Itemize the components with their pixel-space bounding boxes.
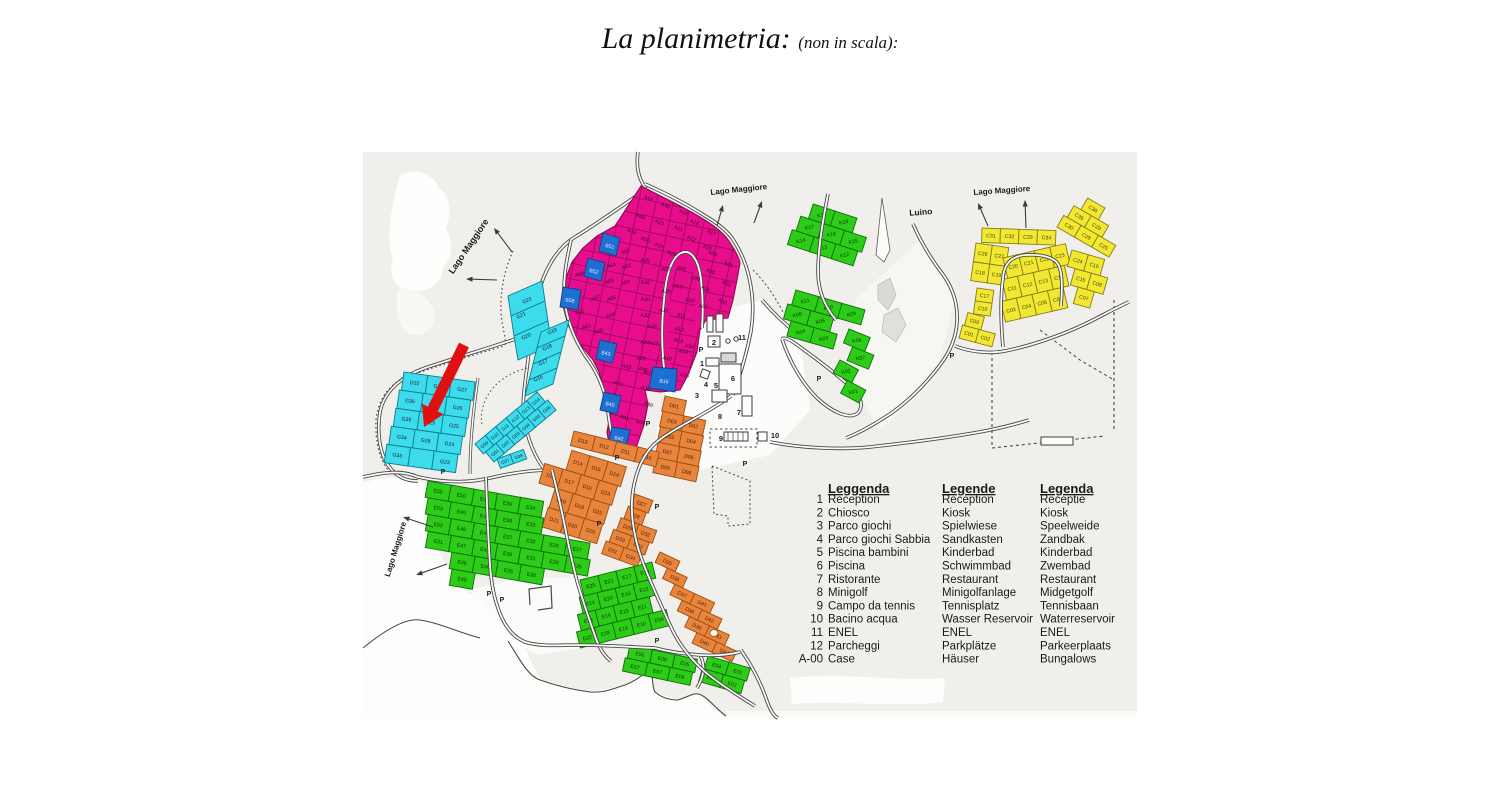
svg-text:Zwembad: Zwembad bbox=[1040, 561, 1091, 573]
svg-text:Kiosk: Kiosk bbox=[1040, 507, 1068, 519]
svg-text:4: 4 bbox=[817, 534, 824, 546]
svg-text:9: 9 bbox=[817, 600, 823, 612]
svg-text:Minigolf: Minigolf bbox=[828, 587, 868, 599]
svg-text:Piscina: Piscina bbox=[828, 561, 866, 573]
svg-text:P: P bbox=[950, 353, 955, 360]
svg-text:Parcheggi: Parcheggi bbox=[828, 640, 880, 652]
svg-text:Waterreservoir: Waterreservoir bbox=[1040, 614, 1115, 626]
svg-text:Bungalows: Bungalows bbox=[1040, 654, 1097, 666]
svg-text:Kinderbad: Kinderbad bbox=[1040, 547, 1092, 559]
svg-text:Restaurant: Restaurant bbox=[942, 574, 999, 586]
svg-text:2: 2 bbox=[712, 338, 716, 347]
svg-text:7: 7 bbox=[737, 408, 741, 417]
svg-text:P: P bbox=[500, 597, 505, 604]
svg-text:P: P bbox=[615, 455, 620, 462]
svg-text:3: 3 bbox=[695, 391, 699, 400]
svg-text:Midgetgolf: Midgetgolf bbox=[1040, 587, 1094, 599]
svg-text:Ristorante: Ristorante bbox=[828, 574, 880, 586]
svg-text:Kiosk: Kiosk bbox=[942, 507, 970, 519]
svg-text:P: P bbox=[655, 638, 660, 645]
svg-text:Receptie: Receptie bbox=[1040, 494, 1085, 506]
svg-text:Bacino acqua: Bacino acqua bbox=[828, 614, 898, 626]
svg-text:Sandkasten: Sandkasten bbox=[942, 534, 1003, 546]
svg-text:P: P bbox=[597, 521, 602, 528]
svg-text:10: 10 bbox=[810, 614, 823, 626]
svg-text:5: 5 bbox=[714, 381, 718, 390]
svg-text:10: 10 bbox=[771, 431, 779, 440]
svg-text:A28: A28 bbox=[649, 341, 659, 348]
svg-text:Minigolfanlage: Minigolfanlage bbox=[942, 587, 1016, 599]
svg-text:A33: A33 bbox=[647, 324, 657, 331]
svg-text:P: P bbox=[817, 376, 822, 383]
svg-text:P: P bbox=[646, 421, 651, 428]
svg-text:Reception: Reception bbox=[942, 494, 994, 506]
svg-text:Campo da tennis: Campo da tennis bbox=[828, 600, 915, 612]
svg-text:K06: K06 bbox=[852, 338, 862, 345]
svg-text:3: 3 bbox=[817, 521, 823, 533]
svg-text:7: 7 bbox=[817, 574, 823, 586]
svg-text:11: 11 bbox=[738, 333, 746, 342]
svg-text:A27: A27 bbox=[661, 267, 671, 274]
svg-text:Parco giochi Sabbia: Parco giochi Sabbia bbox=[828, 534, 931, 546]
svg-text:Zandbak: Zandbak bbox=[1040, 534, 1085, 546]
svg-text:A26: A26 bbox=[636, 356, 646, 363]
svg-text:2: 2 bbox=[817, 507, 823, 519]
svg-text:A31: A31 bbox=[659, 308, 669, 315]
svg-text:P: P bbox=[441, 469, 446, 476]
svg-text:A-00: A-00 bbox=[799, 654, 823, 666]
svg-text:A30: A30 bbox=[640, 297, 650, 304]
svg-text:Parkeerplaats: Parkeerplaats bbox=[1040, 640, 1111, 652]
svg-text:ENEL: ENEL bbox=[942, 627, 973, 639]
svg-text:ENEL: ENEL bbox=[828, 627, 859, 639]
svg-text:C34: C34 bbox=[1042, 235, 1052, 241]
svg-text:Reception: Reception bbox=[828, 494, 880, 506]
svg-text:K07: K07 bbox=[856, 355, 866, 362]
svg-text:Parco giochi: Parco giochi bbox=[828, 521, 891, 533]
svg-text:Case: Case bbox=[828, 654, 855, 666]
svg-text:Piscina bambini: Piscina bambini bbox=[828, 547, 909, 559]
svg-text:B16: B16 bbox=[659, 379, 669, 386]
svg-text:Tennisbaan: Tennisbaan bbox=[1040, 600, 1099, 612]
svg-text:Parkplätze: Parkplätze bbox=[942, 640, 996, 652]
svg-text:8: 8 bbox=[817, 587, 823, 599]
svg-text:A36: A36 bbox=[640, 280, 650, 287]
svg-text:5: 5 bbox=[817, 547, 823, 559]
svg-text:12: 12 bbox=[810, 640, 823, 652]
svg-text:9: 9 bbox=[719, 434, 723, 443]
svg-text:C31: C31 bbox=[986, 233, 996, 239]
svg-text:Speelweide: Speelweide bbox=[1040, 521, 1099, 533]
svg-text:1: 1 bbox=[817, 494, 823, 506]
svg-text:Tennisplatz: Tennisplatz bbox=[942, 600, 1000, 612]
svg-text:8: 8 bbox=[718, 412, 722, 421]
svg-text:11: 11 bbox=[811, 627, 823, 639]
svg-text:Restaurant: Restaurant bbox=[1040, 574, 1097, 586]
svg-text:A32: A32 bbox=[640, 313, 650, 320]
svg-text:P: P bbox=[743, 461, 748, 468]
svg-text:C33: C33 bbox=[1023, 235, 1033, 241]
svg-text:C32: C32 bbox=[1005, 234, 1015, 240]
svg-text:Spielwiese: Spielwiese bbox=[942, 521, 997, 533]
svg-text:6: 6 bbox=[731, 374, 735, 383]
svg-text:Wasser Reservoir: Wasser Reservoir bbox=[942, 614, 1033, 626]
svg-text:P: P bbox=[699, 347, 704, 354]
svg-text:ENEL: ENEL bbox=[1040, 627, 1071, 639]
svg-text:Schwimmbad: Schwimmbad bbox=[942, 561, 1011, 573]
svg-text:A29: A29 bbox=[661, 289, 671, 296]
svg-text:Häuser: Häuser bbox=[942, 654, 979, 666]
svg-text:6: 6 bbox=[817, 561, 823, 573]
svg-text:A35: A35 bbox=[640, 258, 650, 265]
svg-text:Chiosco: Chiosco bbox=[828, 507, 870, 519]
svg-text:Kinderbad: Kinderbad bbox=[942, 547, 994, 559]
svg-text:1: 1 bbox=[700, 359, 704, 368]
svg-text:Luino: Luino bbox=[909, 206, 933, 218]
svg-text:P: P bbox=[655, 504, 660, 511]
svg-text:P: P bbox=[487, 591, 492, 598]
